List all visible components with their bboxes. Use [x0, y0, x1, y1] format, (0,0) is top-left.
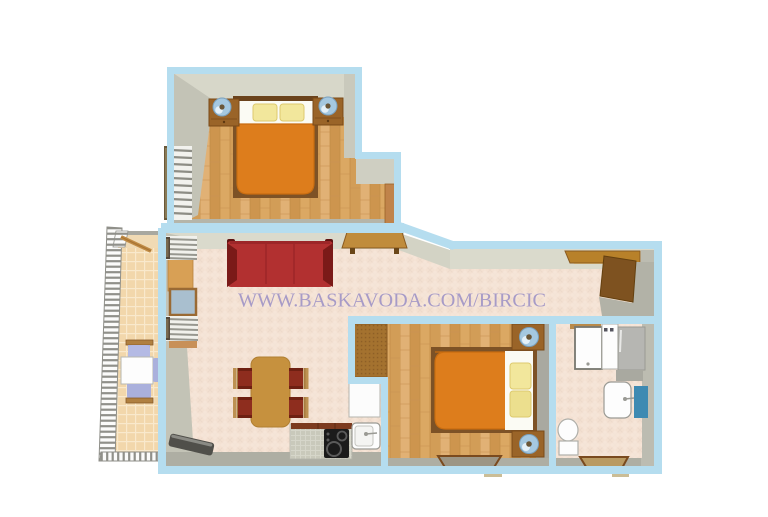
svg-text:WWW.BASKAVODA.COM/BIRCIC: WWW.BASKAVODA.COM/BIRCIC	[238, 290, 546, 312]
